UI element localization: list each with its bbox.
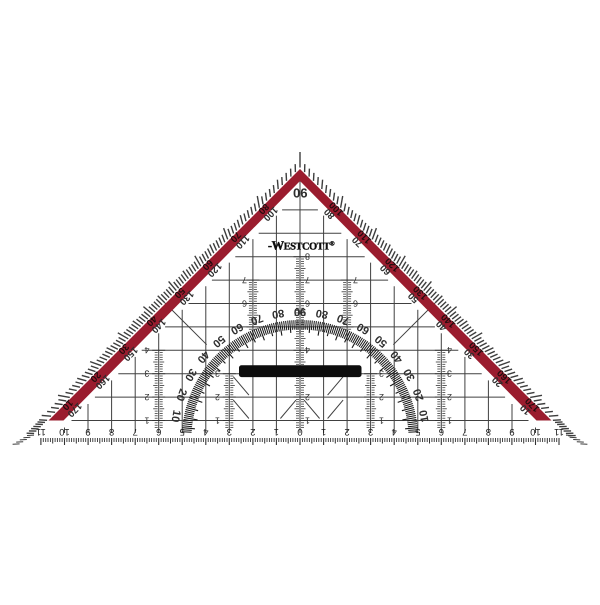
svg-text:8: 8 [305,252,310,262]
svg-text:3: 3 [227,426,232,437]
svg-text:11: 11 [554,426,564,437]
svg-text:6: 6 [156,426,161,437]
svg-text:5: 5 [415,426,420,437]
svg-text:8: 8 [109,426,114,437]
svg-text:2: 2 [344,426,349,437]
svg-text:10: 10 [59,426,70,437]
svg-text:2: 2 [144,392,149,402]
svg-text:0: 0 [297,426,302,437]
svg-text:9: 9 [509,426,514,437]
svg-text:1: 1 [379,415,384,425]
svg-text:6: 6 [353,298,358,308]
svg-text:1: 1 [305,415,310,425]
svg-text:90: 90 [294,306,306,318]
svg-text:6: 6 [242,298,247,308]
svg-text:-WESTCOTT®: -WESTCOTT® [268,239,335,253]
svg-text:4: 4 [305,345,310,355]
svg-text:7: 7 [462,426,467,437]
svg-text:10: 10 [530,426,541,437]
svg-text:10: 10 [168,409,182,423]
svg-text:8: 8 [486,426,491,437]
svg-text:2: 2 [305,392,310,402]
svg-text:3: 3 [368,426,373,437]
svg-text:4: 4 [144,345,149,355]
svg-text:5: 5 [180,426,185,437]
svg-text:9: 9 [85,426,90,437]
svg-text:7: 7 [305,275,310,285]
svg-text:7: 7 [133,426,138,437]
svg-text:3: 3 [144,369,149,379]
svg-text:2: 2 [250,426,255,437]
svg-text:2: 2 [379,392,384,402]
svg-text:80: 80 [271,306,285,320]
svg-text:1: 1 [215,415,220,425]
svg-text:10: 10 [418,409,432,423]
svg-text:1: 1 [274,426,279,437]
svg-text:80: 80 [315,306,329,320]
svg-text:11: 11 [36,426,46,437]
svg-text:7: 7 [242,275,247,285]
svg-text:4: 4 [392,426,397,437]
svg-text:4: 4 [447,345,452,355]
svg-text:1: 1 [144,415,149,425]
svg-text:3: 3 [447,369,452,379]
svg-text:6: 6 [439,426,444,437]
svg-text:1: 1 [321,426,326,437]
svg-text:1: 1 [447,415,452,425]
svg-text:2: 2 [447,392,452,402]
svg-text:90: 90 [293,186,307,201]
svg-text:2: 2 [215,392,220,402]
svg-text:7: 7 [353,275,358,285]
svg-text:4: 4 [203,426,208,437]
